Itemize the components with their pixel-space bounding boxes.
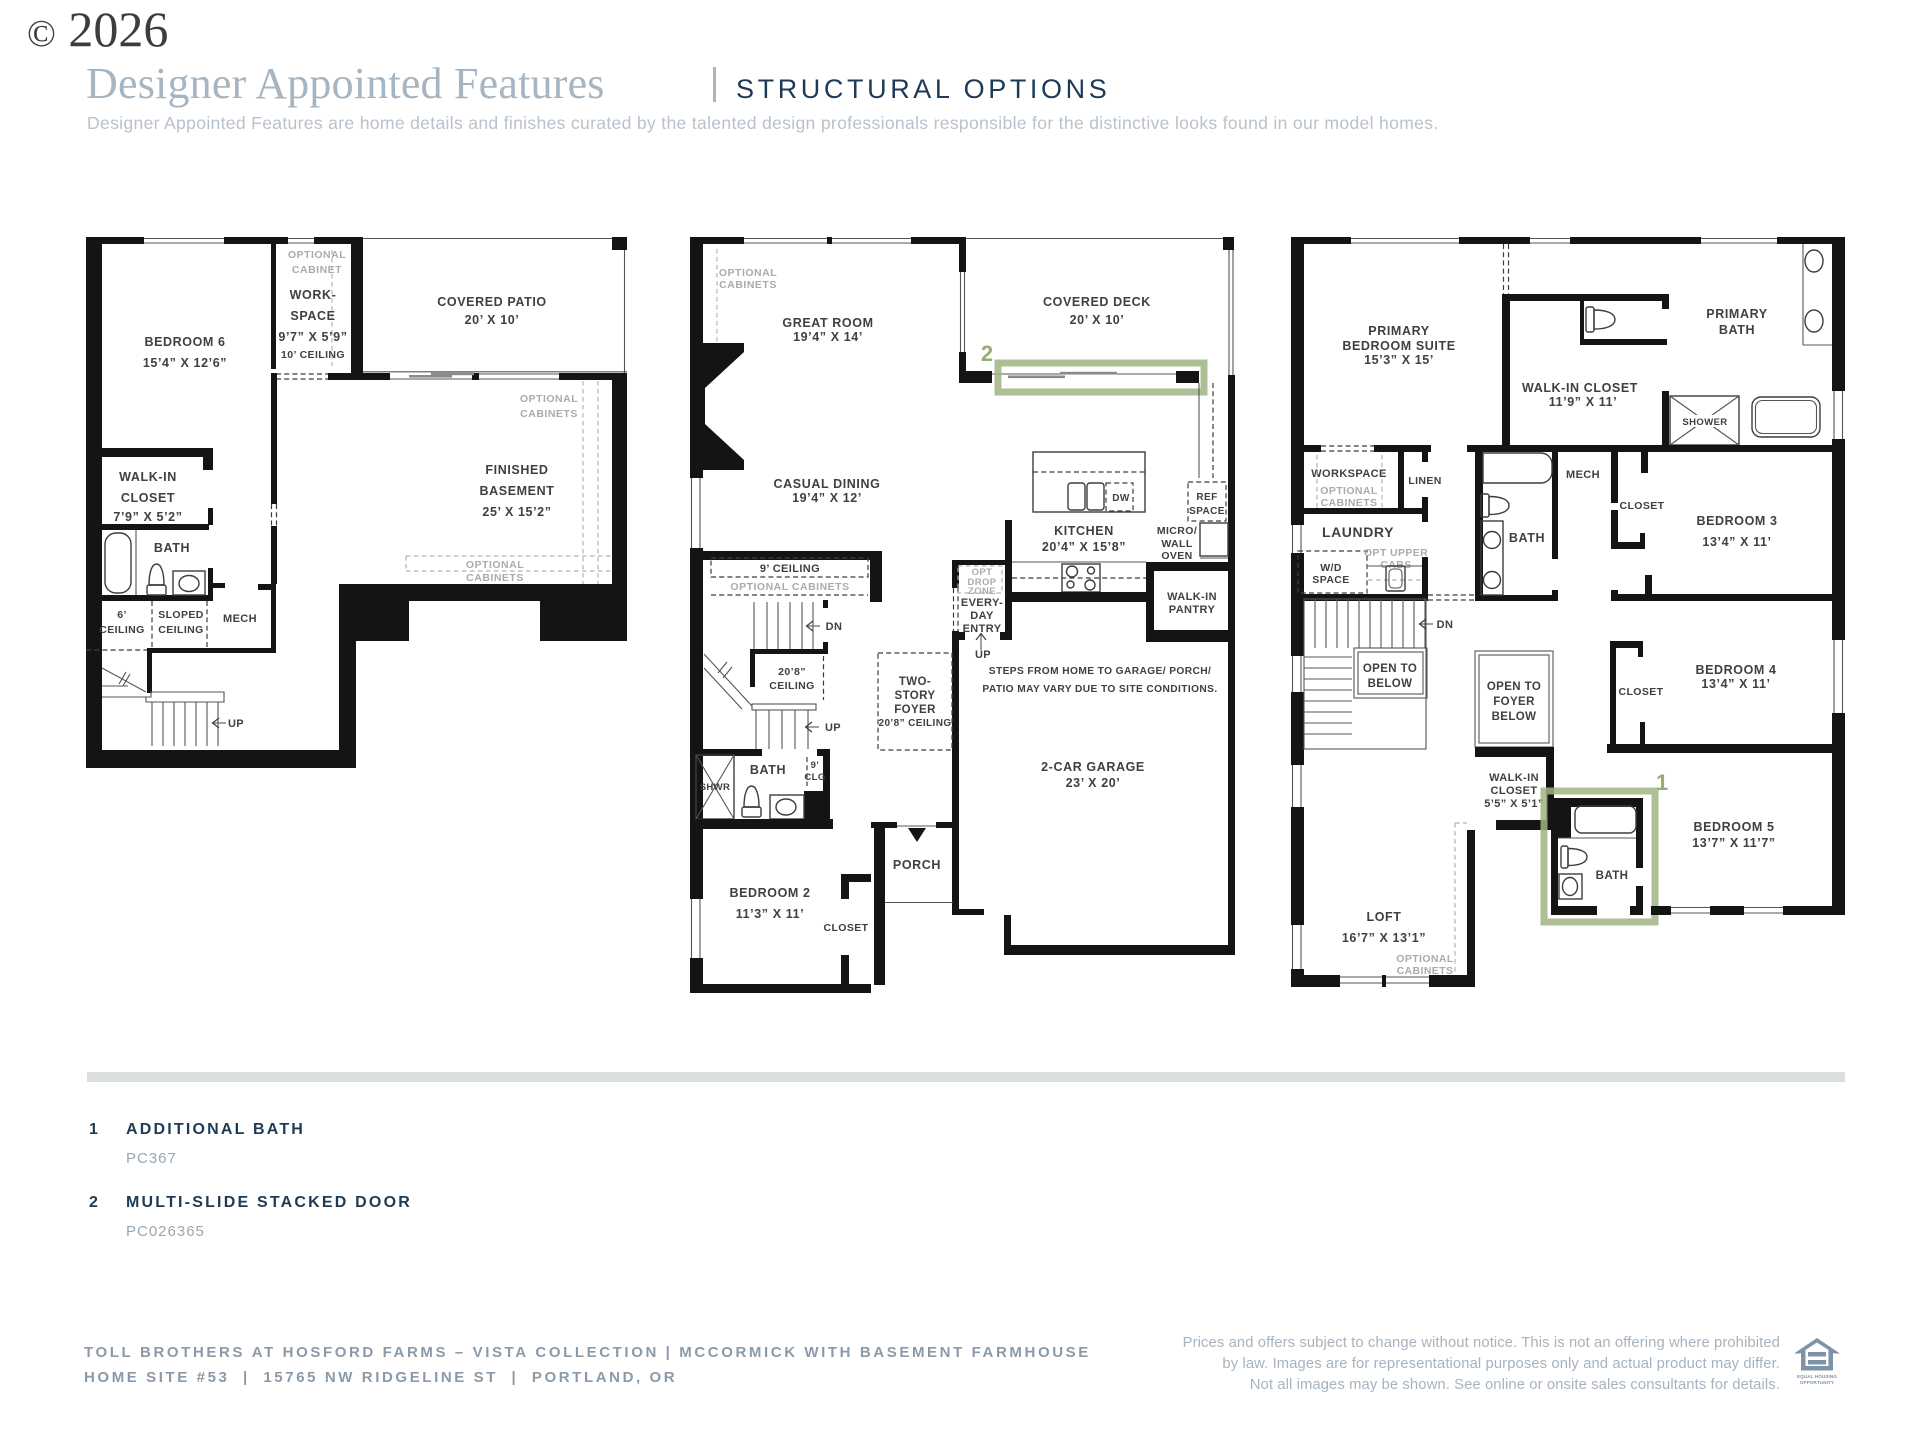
svg-text:PATIO MAY VARY DUE TO SITE CON: PATIO MAY VARY DUE TO SITE CONDITIONS.	[982, 684, 1217, 695]
svg-text:PRIMARY: PRIMARY	[1368, 324, 1429, 338]
svg-text:9’7” X 5’9”: 9’7” X 5’9”	[278, 330, 347, 344]
svg-text:MECH: MECH	[1566, 469, 1600, 481]
svg-text:16’7” X 13’1”: 16’7” X 13’1”	[1342, 931, 1426, 945]
svg-text:WORKSPACE: WORKSPACE	[1311, 468, 1387, 480]
svg-text:BEDROOM 3: BEDROOM 3	[1696, 514, 1777, 528]
svg-text:OPTIONAL: OPTIONAL	[520, 393, 578, 405]
svg-text:OPEN TO: OPEN TO	[1363, 663, 1417, 675]
svg-text:2-CAR GARAGE: 2-CAR GARAGE	[1041, 760, 1145, 774]
svg-text:1: 1	[1656, 770, 1668, 795]
svg-text:20’ X 10’: 20’ X 10’	[1070, 313, 1125, 327]
svg-text:GREAT ROOM: GREAT ROOM	[782, 316, 873, 330]
svg-text:SPACE: SPACE	[1312, 574, 1349, 586]
svg-text:ZONE: ZONE	[968, 586, 996, 597]
svg-text:OPTIONAL: OPTIONAL	[1396, 953, 1454, 965]
svg-text:DW: DW	[1112, 493, 1130, 504]
svg-text:OPTIONAL: OPTIONAL	[719, 267, 777, 279]
svg-text:SHWR: SHWR	[700, 782, 731, 793]
svg-text:10’ CEILING: 10’ CEILING	[281, 349, 345, 361]
svg-text:CLOSET: CLOSET	[1620, 500, 1665, 512]
svg-text:BATH: BATH	[750, 763, 786, 777]
svg-text:OPTIONAL CABINETS: OPTIONAL CABINETS	[730, 581, 849, 593]
svg-text:WORK-: WORK-	[290, 288, 337, 302]
svg-text:WALK-IN: WALK-IN	[119, 470, 177, 484]
svg-text:CABINETS: CABINETS	[466, 572, 524, 584]
svg-text:WALL: WALL	[1161, 538, 1193, 550]
svg-text:BEDROOM SUITE: BEDROOM SUITE	[1342, 339, 1455, 353]
svg-text:TWO-: TWO-	[899, 676, 931, 688]
svg-text:BEDROOM 6: BEDROOM 6	[144, 335, 225, 349]
svg-text:OPTIONAL: OPTIONAL	[466, 559, 524, 571]
svg-text:25’ X 15’2”: 25’ X 15’2”	[482, 505, 551, 519]
svg-text:15’4” X 12’6”: 15’4” X 12’6”	[143, 356, 227, 370]
svg-text:20’4” X 15’8”: 20’4” X 15’8”	[1042, 540, 1126, 554]
svg-text:PANTRY: PANTRY	[1169, 604, 1216, 616]
svg-text:DAY: DAY	[970, 610, 994, 622]
svg-text:20’ X 10’: 20’ X 10’	[465, 313, 520, 327]
svg-text:5’5” X 5’1”: 5’5” X 5’1”	[1484, 798, 1543, 810]
svg-text:FOYER: FOYER	[1493, 696, 1535, 708]
svg-text:BATH: BATH	[154, 541, 190, 555]
svg-text:MECH: MECH	[223, 613, 257, 625]
svg-text:23’ X 20’: 23’ X 20’	[1066, 776, 1121, 790]
svg-text:UP: UP	[228, 718, 244, 730]
svg-text:STEPS FROM HOME TO GARAGE/ POR: STEPS FROM HOME TO GARAGE/ PORCH/	[989, 666, 1211, 677]
svg-text:SHOWER: SHOWER	[1682, 417, 1727, 428]
svg-text:OPEN TO: OPEN TO	[1487, 681, 1541, 693]
svg-text:CLOSET: CLOSET	[1619, 686, 1664, 698]
svg-text:DN: DN	[826, 621, 843, 633]
svg-text:CEILING: CEILING	[769, 680, 814, 692]
svg-text:11’9” X 11’: 11’9” X 11’	[1549, 395, 1617, 409]
svg-text:UP: UP	[825, 722, 841, 734]
svg-text:11’3” X 11’: 11’3” X 11’	[736, 907, 804, 921]
svg-text:OPTIONAL: OPTIONAL	[1320, 485, 1378, 497]
svg-text:KITCHEN: KITCHEN	[1054, 524, 1114, 538]
svg-text:CLOSET: CLOSET	[824, 922, 869, 934]
svg-text:OPTIONAL: OPTIONAL	[288, 249, 346, 261]
svg-text:CLG: CLG	[804, 772, 825, 783]
svg-text:BEDROOM 5: BEDROOM 5	[1693, 820, 1774, 834]
svg-text:EVERY-: EVERY-	[961, 597, 1003, 609]
svg-text:9’: 9’	[811, 760, 820, 771]
svg-text:LOFT: LOFT	[1366, 910, 1401, 924]
svg-text:SPACE: SPACE	[290, 309, 335, 323]
svg-text:13’4” X 11’: 13’4” X 11’	[1702, 535, 1771, 549]
svg-text:FOYER: FOYER	[894, 704, 936, 716]
svg-text:COVERED DECK: COVERED DECK	[1043, 295, 1151, 309]
svg-text:COVERED PATIO: COVERED PATIO	[437, 295, 546, 309]
svg-text:OPT UPPER: OPT UPPER	[1364, 547, 1428, 559]
svg-text:CASUAL DINING: CASUAL DINING	[774, 477, 881, 491]
svg-text:OPPORTUNITY: OPPORTUNITY	[1800, 1380, 1834, 1385]
svg-text:STORY: STORY	[895, 690, 936, 702]
svg-text:6’: 6’	[117, 609, 127, 621]
svg-text:19’4” X 12’: 19’4” X 12’	[792, 491, 862, 505]
svg-text:BATH: BATH	[1596, 870, 1629, 882]
svg-text:CEILING: CEILING	[99, 624, 144, 636]
svg-text:FINISHED: FINISHED	[485, 463, 548, 477]
svg-text:2: 2	[981, 341, 993, 366]
svg-text:CLOSET: CLOSET	[1490, 785, 1537, 797]
svg-text:7’9” X 5’2”: 7’9” X 5’2”	[113, 510, 182, 524]
svg-text:BEDROOM 4: BEDROOM 4	[1695, 663, 1776, 677]
svg-text:CABINETS: CABINETS	[719, 279, 777, 291]
svg-text:CABINETS: CABINETS	[1321, 497, 1378, 509]
svg-text:WALK-IN: WALK-IN	[1167, 591, 1217, 603]
svg-text:BATH: BATH	[1509, 531, 1545, 545]
svg-text:19’4” X 14’: 19’4” X 14’	[793, 330, 863, 344]
svg-text:BASEMENT: BASEMENT	[480, 484, 555, 498]
svg-text:15’3” X 15’: 15’3” X 15’	[1364, 353, 1434, 367]
svg-text:CABINET: CABINET	[292, 264, 342, 276]
svg-text:BELOW: BELOW	[1492, 711, 1537, 723]
svg-text:UP: UP	[975, 649, 991, 661]
svg-text:MICRO/: MICRO/	[1157, 525, 1197, 537]
svg-text:LINEN: LINEN	[1408, 475, 1442, 487]
svg-text:20’8” CEILING: 20’8” CEILING	[879, 718, 952, 729]
svg-text:W/D: W/D	[1320, 562, 1342, 574]
svg-text:20’8”: 20’8”	[778, 666, 806, 678]
svg-text:CEILING: CEILING	[158, 624, 203, 636]
svg-text:REF: REF	[1196, 492, 1217, 503]
svg-text:13’7” X 11’7”: 13’7” X 11’7”	[1692, 836, 1776, 850]
svg-text:OVEN: OVEN	[1161, 550, 1192, 562]
svg-text:PRIMARY: PRIMARY	[1706, 307, 1767, 321]
svg-text:DN: DN	[1437, 619, 1454, 631]
svg-text:WALK-IN CLOSET: WALK-IN CLOSET	[1522, 381, 1638, 395]
svg-text:EQUAL HOUSING: EQUAL HOUSING	[1797, 1374, 1837, 1379]
svg-text:WALK-IN: WALK-IN	[1489, 772, 1539, 784]
svg-text:PORCH: PORCH	[893, 858, 941, 872]
svg-text:BELOW: BELOW	[1368, 678, 1413, 690]
svg-text:SPACE: SPACE	[1189, 506, 1225, 517]
svg-text:SLOPED: SLOPED	[158, 609, 204, 621]
svg-text:BEDROOM 2: BEDROOM 2	[729, 886, 810, 900]
svg-text:BATH: BATH	[1719, 323, 1755, 337]
svg-text:9’ CEILING: 9’ CEILING	[760, 563, 820, 575]
svg-text:ENTRY: ENTRY	[963, 623, 1002, 635]
svg-text:CABINETS: CABINETS	[520, 408, 578, 420]
svg-text:CLOSET: CLOSET	[121, 491, 175, 505]
svg-text:LAUNDRY: LAUNDRY	[1322, 524, 1394, 540]
svg-text:13’4” X 11’: 13’4” X 11’	[1701, 677, 1770, 691]
